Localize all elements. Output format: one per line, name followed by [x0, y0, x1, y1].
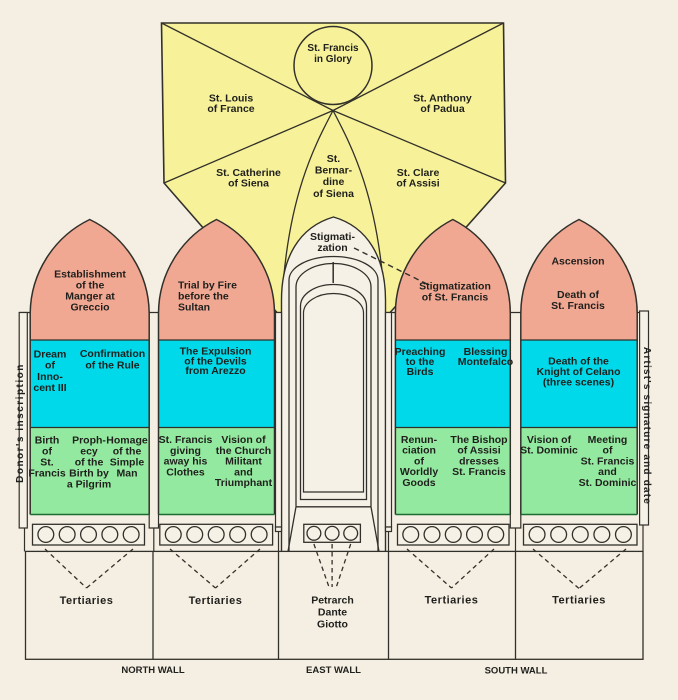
svg-text:Greccio: Greccio	[70, 302, 109, 314]
svg-text:of the Rule: of the Rule	[85, 359, 139, 371]
svg-text:in Glory: in Glory	[314, 54, 352, 65]
svg-text:Man: Man	[117, 468, 138, 480]
svg-text:of Siena: of Siena	[228, 178, 269, 190]
svg-text:Montefalco: Montefalco	[458, 356, 513, 368]
svg-text:Dream: Dream	[34, 349, 67, 361]
svg-text:St. Dominic: St. Dominic	[520, 445, 578, 457]
svg-text:Donor's inscription: Donor's inscription	[15, 363, 26, 483]
svg-text:of Padua: of Padua	[420, 103, 464, 115]
svg-text:Artist's signature and date: Artist's signature and date	[641, 347, 652, 505]
svg-text:of Assisi: of Assisi	[396, 178, 439, 190]
svg-text:zation: zation	[317, 242, 347, 254]
svg-text:Tertiaries: Tertiaries	[60, 595, 114, 607]
svg-text:Inno-: Inno-	[37, 371, 63, 383]
svg-text:Bernar-: Bernar-	[315, 165, 353, 177]
svg-text:Triumphant: Triumphant	[215, 477, 273, 489]
svg-text:a Pilgrim: a Pilgrim	[67, 479, 111, 491]
svg-text:Petrarch: Petrarch	[311, 595, 354, 607]
svg-text:Tertiaries: Tertiaries	[189, 595, 243, 607]
svg-text:Sultan: Sultan	[178, 302, 210, 314]
svg-text:EAST WALL: EAST WALL	[306, 665, 361, 676]
svg-text:of St. Francis: of St. Francis	[422, 292, 489, 304]
svg-text:Birds: Birds	[407, 366, 434, 378]
svg-text:NORTH WALL: NORTH WALL	[121, 665, 185, 676]
svg-text:Goods: Goods	[402, 477, 435, 489]
svg-text:Ascension: Ascension	[551, 256, 604, 268]
svg-text:Clothes: Clothes	[166, 466, 205, 478]
svg-text:of France: of France	[207, 103, 254, 115]
svg-text:of: of	[45, 360, 55, 372]
svg-text:Dante: Dante	[318, 607, 347, 619]
svg-text:dine: dine	[323, 176, 345, 188]
svg-text:cent III: cent III	[33, 382, 66, 394]
svg-text:Francis: Francis	[28, 468, 66, 480]
svg-text:St. Francis: St. Francis	[307, 43, 359, 54]
svg-text:St. Dominic: St. Dominic	[579, 477, 637, 489]
svg-text:St.: St.	[327, 153, 341, 165]
svg-text:Giotto: Giotto	[317, 619, 348, 631]
svg-text:SOUTH WALL: SOUTH WALL	[485, 666, 548, 677]
svg-text:Confirmation: Confirmation	[80, 348, 145, 360]
svg-text:Tertiaries: Tertiaries	[425, 595, 479, 607]
svg-text:of Siena: of Siena	[313, 188, 354, 200]
svg-text:Tertiaries: Tertiaries	[552, 595, 606, 607]
svg-text:(three scenes): (three scenes)	[543, 377, 614, 389]
svg-text:from Arezzo: from Arezzo	[185, 365, 245, 377]
svg-text:St. Francis: St. Francis	[551, 300, 605, 312]
svg-text:St. Francis: St. Francis	[452, 466, 506, 478]
